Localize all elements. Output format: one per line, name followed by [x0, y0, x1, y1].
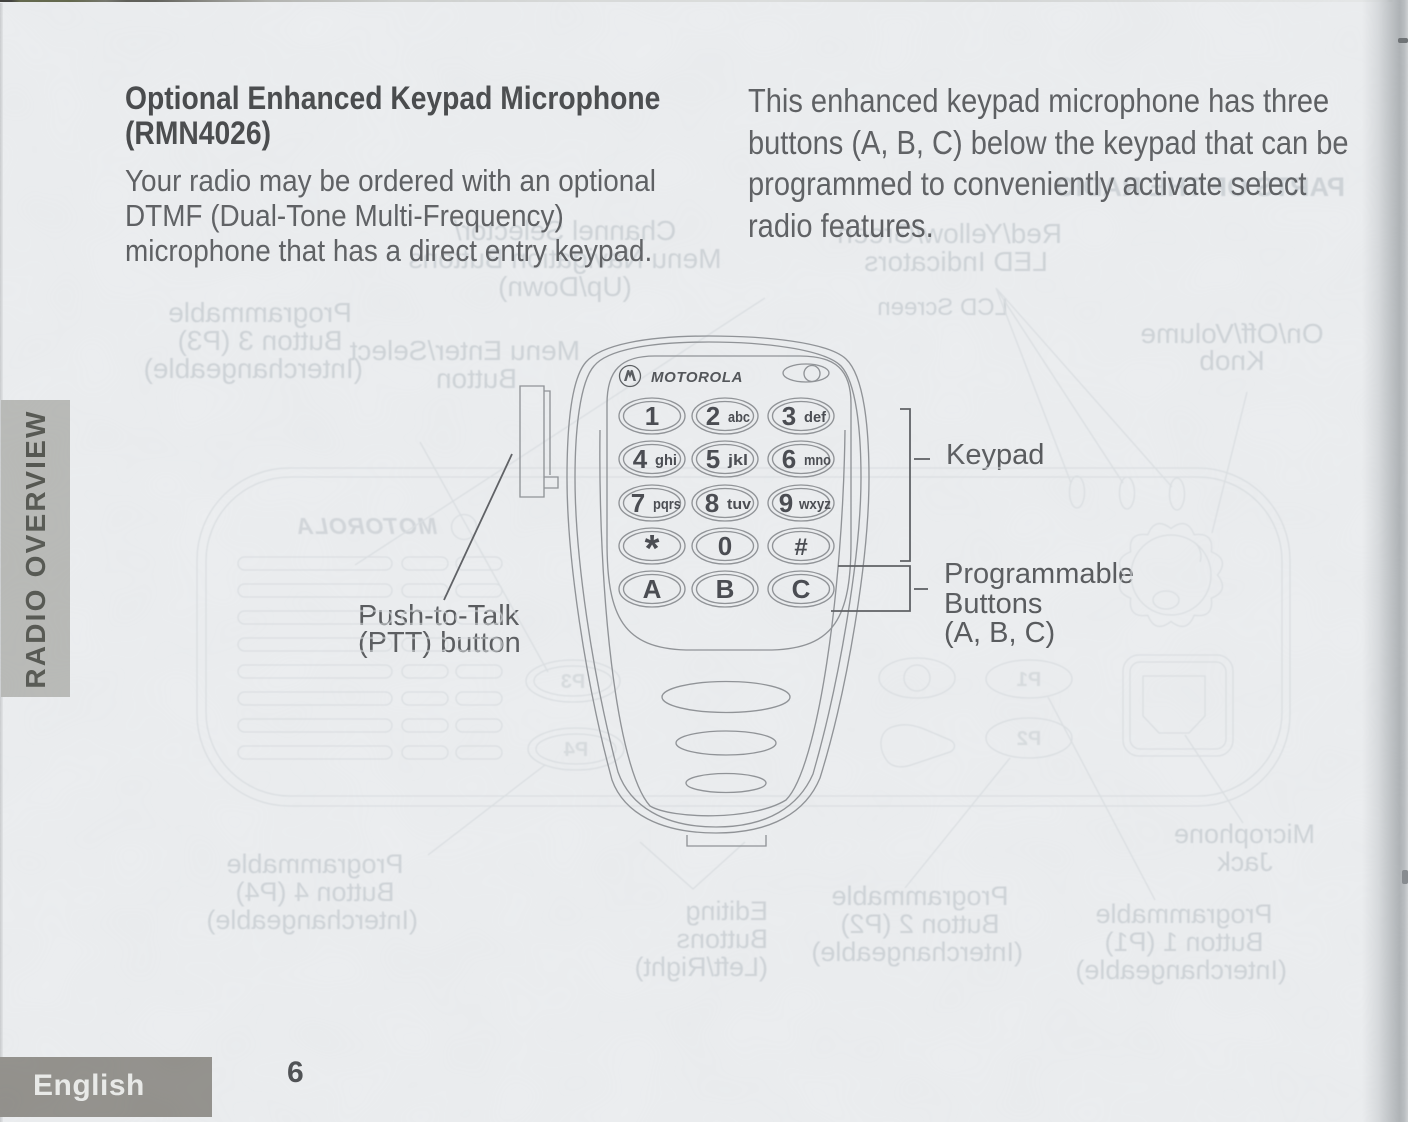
- svg-text:2: 2: [706, 401, 720, 431]
- svg-text:P4: P4: [563, 739, 588, 761]
- svg-text:A: A: [643, 574, 662, 604]
- svg-text:4: 4: [633, 444, 648, 474]
- svg-text:*: *: [645, 528, 660, 570]
- svg-text:#: #: [794, 534, 807, 561]
- svg-text:1: 1: [645, 401, 659, 431]
- svg-text:P1: P1: [1017, 669, 1041, 691]
- svg-text:tuv: tuv: [727, 496, 752, 513]
- svg-text:P3: P3: [561, 671, 585, 693]
- svg-text:9: 9: [779, 488, 793, 518]
- svg-text:abc: abc: [728, 409, 750, 426]
- svg-text:pqrs: pqrs: [653, 496, 681, 513]
- svg-text:8: 8: [705, 488, 719, 518]
- svg-text:mno: mno: [804, 452, 831, 469]
- svg-text:ghi: ghi: [655, 452, 677, 469]
- svg-text:B: B: [716, 574, 735, 604]
- svg-text:0: 0: [718, 531, 732, 561]
- svg-text:C: C: [792, 574, 811, 604]
- svg-text:6: 6: [782, 444, 796, 474]
- svg-text:5: 5: [706, 444, 720, 474]
- svg-text:7: 7: [631, 488, 645, 518]
- svg-text:jkl: jkl: [727, 452, 748, 469]
- svg-text:wxyz: wxyz: [798, 496, 831, 513]
- svg-text:P2: P2: [1017, 728, 1041, 750]
- svg-text:MOTOROLA: MOTOROLA: [651, 369, 743, 386]
- svg-text:def: def: [804, 409, 827, 426]
- svg-text:3: 3: [782, 401, 796, 431]
